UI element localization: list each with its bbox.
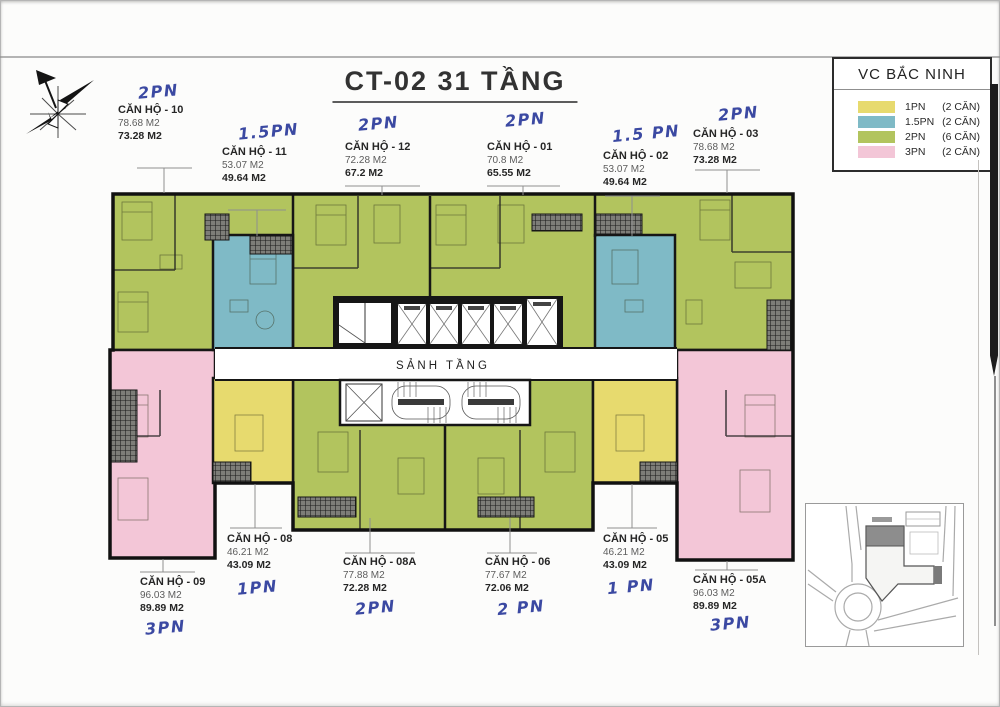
unit-label-05a: CĂN HỘ - 05A 96.03 M2 89.89 M2 — [693, 574, 766, 613]
unit-label-12: CĂN HỘ - 12 72.28 M2 67.2 M2 — [345, 141, 410, 180]
unit-net-area: 43.09 M2 — [227, 559, 292, 572]
unit-net-area: 73.28 M2 — [693, 154, 758, 167]
unit-note-03: 2PN — [717, 102, 759, 124]
unit-net-area: 43.09 M2 — [603, 559, 668, 572]
site-buildings — [866, 512, 942, 601]
unit-name: CĂN HỘ - 09 — [140, 576, 205, 589]
unit-name: CĂN HỘ - 05 — [603, 533, 668, 546]
unit-net-area: 73.28 M2 — [118, 130, 183, 143]
unit-note-12: 2PN — [357, 112, 399, 134]
unit-area-02-1-5pn — [595, 235, 675, 350]
unit-label-08a: CĂN HỘ - 08A 77.88 M2 72.28 M2 — [343, 556, 416, 595]
unit-gross-area: 46.21 M2 — [227, 546, 292, 559]
unit-note-10: 2PN — [137, 80, 179, 102]
unit-name: CĂN HỘ - 11 — [222, 146, 287, 159]
unit-name: CĂN HỘ - 05A — [693, 574, 766, 587]
scan-crease-line — [978, 160, 979, 655]
unit-label-02: CĂN HỘ - 02 53.07 M2 49.64 M2 — [603, 150, 668, 189]
scan-edge-artifact-tail — [994, 376, 996, 626]
unit-gross-area: 46.21 M2 — [603, 546, 668, 559]
unit-net-area: 65.55 M2 — [487, 167, 552, 180]
unit-net-area: 67.2 M2 — [345, 167, 410, 180]
unit-label-11: CĂN HỘ - 11 53.07 M2 49.64 M2 — [222, 146, 287, 185]
unit-net-area: 89.89 M2 — [140, 602, 205, 615]
unit-label-09: CĂN HỘ - 09 96.03 M2 89.89 M2 — [140, 576, 205, 615]
stair-core — [340, 380, 530, 425]
elevator-core — [333, 296, 563, 349]
unit-name: CĂN HỘ - 03 — [693, 128, 758, 141]
unit-gross-area: 77.88 M2 — [343, 569, 416, 582]
unit-net-area: 49.64 M2 — [222, 172, 287, 185]
unit-label-03: CĂN HỘ - 03 78.68 M2 73.28 M2 — [693, 128, 758, 167]
unit-note-09: 3PN — [144, 616, 186, 638]
elevator-cell — [430, 304, 458, 344]
unit-net-area: 89.89 M2 — [693, 600, 766, 613]
elevator-cell — [462, 304, 490, 344]
unit-name: CĂN HỘ - 08 — [227, 533, 292, 546]
unit-name: CĂN HỘ - 08A — [343, 556, 416, 569]
unit-label-01: CĂN HỘ - 01 70.8 M2 65.55 M2 — [487, 141, 552, 180]
unit-label-10: CĂN HỘ - 10 78.68 M2 73.28 M2 — [118, 104, 183, 143]
unit-net-area: 72.28 M2 — [343, 582, 416, 595]
unit-gross-area: 78.68 M2 — [693, 141, 758, 154]
unit-label-08: CĂN HỘ - 08 46.21 M2 43.09 M2 — [227, 533, 292, 572]
unit-name: CĂN HỘ - 06 — [485, 556, 550, 569]
site-location-map — [805, 503, 964, 647]
scan-edge-artifact — [990, 84, 998, 376]
unit-label-06: CĂN HỘ - 06 77.67 M2 72.06 M2 — [485, 556, 550, 595]
unit-note-01: 2PN — [504, 108, 546, 130]
unit-gross-area: 96.03 M2 — [693, 587, 766, 600]
elevator-cell — [494, 304, 522, 344]
elevator-cell-large — [527, 299, 557, 345]
unit-gross-area: 53.07 M2 — [222, 159, 287, 172]
unit-note-08a: 2PN — [354, 596, 396, 618]
elevator-cell — [398, 304, 426, 344]
unit-name: CĂN HỘ - 01 — [487, 141, 552, 154]
unit-net-area: 49.64 M2 — [603, 176, 668, 189]
unit-net-area: 72.06 M2 — [485, 582, 550, 595]
unit-name: CĂN HỘ - 02 — [603, 150, 668, 163]
unit-gross-area: 53.07 M2 — [603, 163, 668, 176]
unit-label-05: CĂN HỘ - 05 46.21 M2 43.09 M2 — [603, 533, 668, 572]
unit-gross-area: 72.28 M2 — [345, 154, 410, 167]
unit-gross-area: 70.8 M2 — [487, 154, 552, 167]
unit-gross-area: 77.67 M2 — [485, 569, 550, 582]
unit-gross-area: 96.03 M2 — [140, 589, 205, 602]
unit-area-05a-3pn — [677, 350, 793, 560]
unit-note-05a: 3PN — [709, 612, 751, 634]
unit-gross-area: 78.68 M2 — [118, 117, 183, 130]
scanned-floorplan-sheet: CT-02 31 TẦNG VC BẮC NINH 1PN (2 CĂN) 1.… — [0, 0, 1000, 707]
unit-name: CĂN HỘ - 12 — [345, 141, 410, 154]
lobby-label: SẢNH TẦNG — [396, 359, 490, 372]
unit-note-08: 1PN — [236, 576, 278, 598]
unit-name: CĂN HỘ - 10 — [118, 104, 183, 117]
